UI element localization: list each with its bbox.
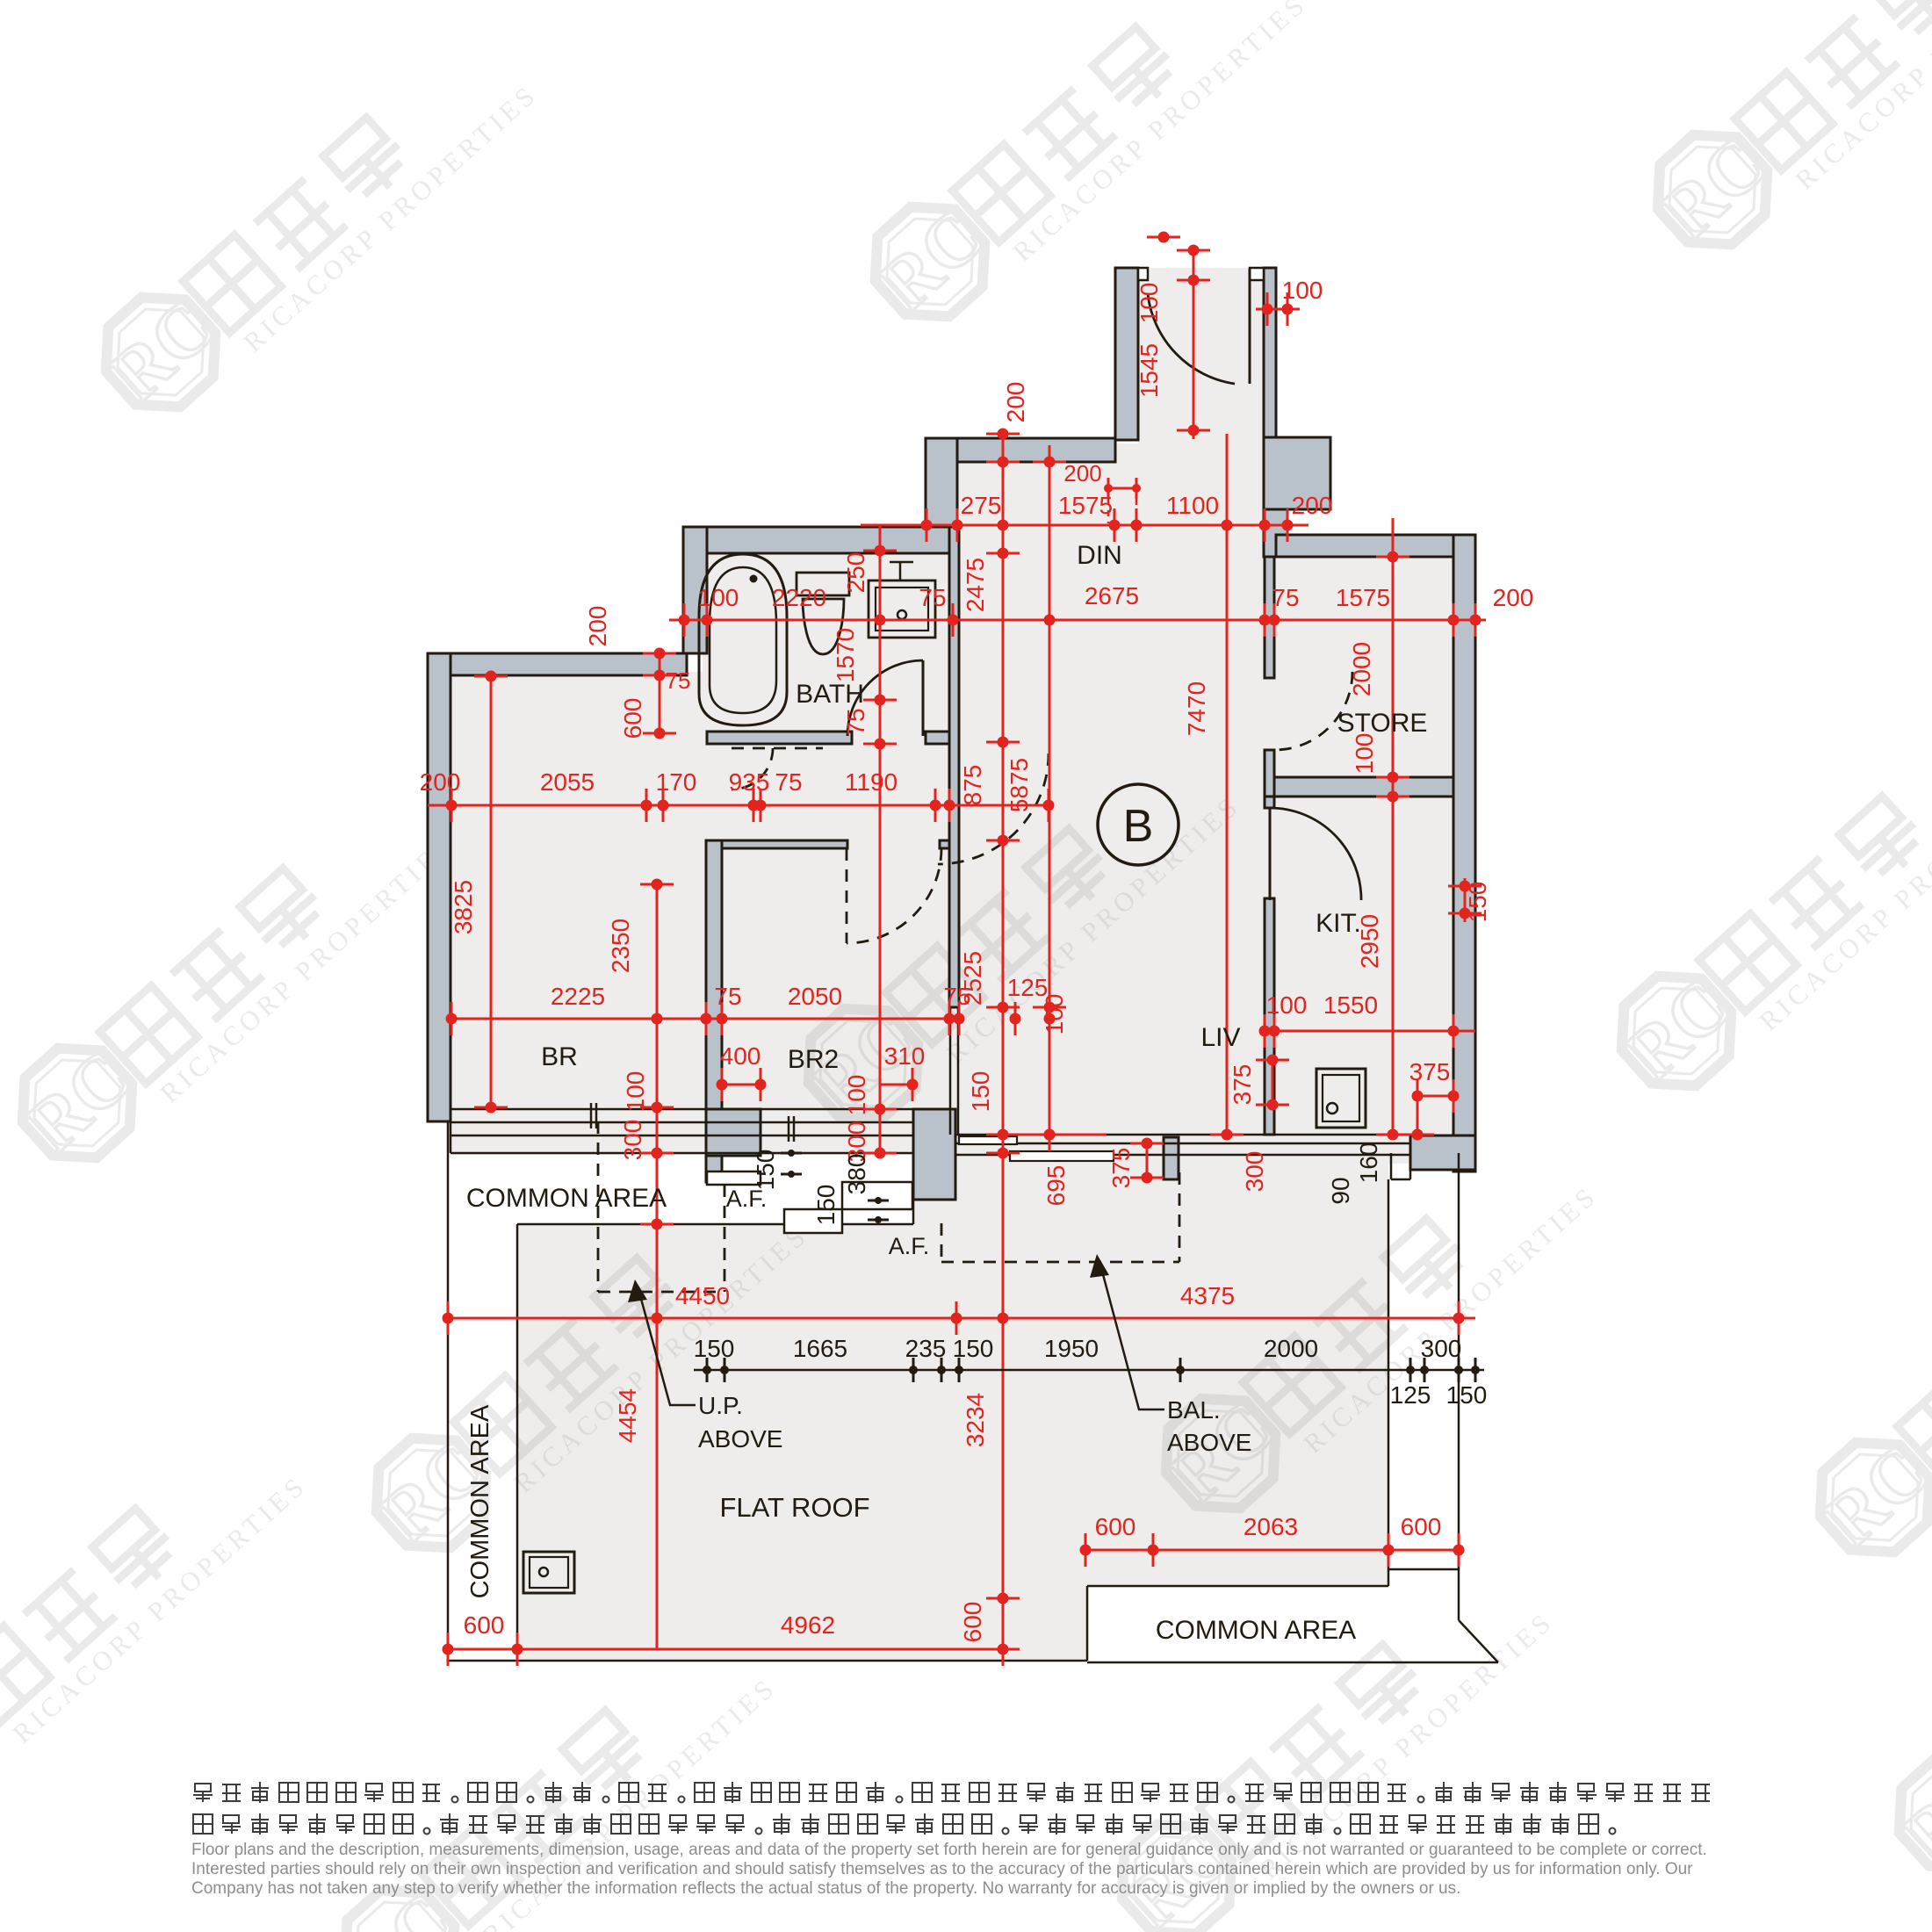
svg-text:4375: 4375 [1180,1282,1235,1309]
svg-text:1190: 1190 [845,768,898,796]
svg-text:1570: 1570 [832,628,859,682]
svg-text:100: 100 [1266,991,1308,1019]
svg-text:400: 400 [720,1042,761,1070]
svg-text:2063: 2063 [1244,1513,1298,1540]
svg-text:310: 310 [884,1042,926,1070]
svg-text:U.P.: U.P. [698,1392,743,1419]
svg-text:160: 160 [1355,1143,1382,1184]
svg-text:BR2: BR2 [788,1045,839,1074]
svg-text:2000: 2000 [1264,1335,1318,1362]
svg-text:100: 100 [698,584,739,611]
svg-text:600: 600 [1401,1513,1442,1540]
svg-text:ABOVE: ABOVE [698,1425,782,1453]
svg-text:Company has not taken any step: Company has not taken any step to verify… [191,1879,1460,1898]
svg-text:380: 380 [843,1154,870,1195]
svg-text:BAL.: BAL. [1167,1396,1221,1424]
svg-text:7470: 7470 [1183,681,1210,736]
svg-text:B: B [1123,801,1154,852]
svg-text:DIN: DIN [1077,541,1122,570]
svg-text:375: 375 [1409,1058,1451,1085]
svg-text:75: 75 [1272,584,1299,611]
svg-text:STORE: STORE [1337,709,1428,738]
svg-text:FLAT ROOF: FLAT ROOF [719,1492,869,1523]
svg-text:75: 75 [666,667,691,694]
svg-text:600: 600 [464,1611,505,1639]
svg-text:100: 100 [1282,277,1323,304]
svg-text:2220: 2220 [772,584,826,611]
svg-text:4450: 4450 [675,1282,730,1309]
svg-text:COMMON AREA: COMMON AREA [466,1404,494,1598]
svg-text:375: 375 [1229,1064,1256,1106]
svg-text:90: 90 [1327,1177,1354,1204]
svg-text:LIV: LIV [1200,1023,1240,1052]
svg-text:200: 200 [1292,492,1333,519]
svg-text:1545: 1545 [1135,343,1163,398]
svg-text:100: 100 [1351,733,1378,775]
svg-text:2475: 2475 [962,558,989,612]
svg-text:150: 150 [967,1071,994,1113]
svg-text:235: 235 [905,1335,947,1362]
svg-text:1665: 1665 [793,1335,847,1362]
svg-text:150: 150 [752,1150,779,1191]
svg-text:100: 100 [622,1071,649,1113]
svg-text:1950: 1950 [1044,1335,1099,1362]
svg-text:4962: 4962 [781,1611,835,1639]
svg-text:5875: 5875 [1006,758,1033,812]
svg-text:600: 600 [619,698,646,739]
svg-text:150: 150 [812,1185,840,1226]
svg-text:300: 300 [1241,1151,1268,1193]
svg-text:200: 200 [584,606,611,647]
svg-text:375: 375 [1107,1148,1135,1189]
svg-text:300: 300 [619,1120,646,1161]
svg-text:150: 150 [1464,882,1491,923]
svg-text:2225: 2225 [551,983,605,1010]
svg-text:75: 75 [842,708,869,735]
svg-text:1550: 1550 [1323,991,1378,1019]
svg-text:ABOVE: ABOVE [1167,1429,1251,1456]
svg-text:2055: 2055 [540,768,595,796]
svg-text:Floor plans and the descriptio: Floor plans and the description, measure… [191,1841,1707,1859]
svg-text:695: 695 [1042,1165,1070,1207]
svg-text:200: 200 [1063,460,1101,487]
svg-text:2675: 2675 [1085,582,1139,609]
svg-text:2525: 2525 [959,951,986,1006]
svg-text:75: 75 [775,768,802,796]
svg-text:2350: 2350 [607,919,634,973]
svg-text:600: 600 [1095,1513,1136,1540]
svg-text:170: 170 [656,768,697,796]
svg-text:KIT.: KIT. [1316,909,1361,938]
svg-text:200: 200 [1002,382,1029,423]
svg-text:1100: 1100 [1166,492,1219,519]
svg-text:150: 150 [694,1335,735,1362]
svg-text:75: 75 [714,983,741,1010]
svg-text:150: 150 [953,1335,994,1362]
svg-text:200: 200 [1493,584,1534,611]
svg-text:A.F.: A.F. [726,1186,768,1212]
svg-text:2000: 2000 [1348,642,1375,696]
svg-text:A.F.: A.F. [889,1233,930,1259]
svg-text:COMMON AREA: COMMON AREA [466,1184,667,1213]
svg-text:1575: 1575 [1058,492,1113,519]
svg-text:COMMON AREA: COMMON AREA [1156,1616,1356,1645]
svg-text:150: 150 [1446,1381,1488,1409]
svg-text:300: 300 [1421,1335,1462,1362]
svg-text:100: 100 [843,1075,870,1116]
svg-text:1575: 1575 [1336,584,1390,611]
svg-text:250: 250 [842,552,869,594]
svg-text:125: 125 [1390,1381,1431,1409]
svg-text:4454: 4454 [614,1388,641,1443]
svg-text:3234: 3234 [962,1393,989,1447]
svg-text:BR: BR [541,1042,578,1071]
svg-text:875: 875 [959,765,986,806]
svg-text:3825: 3825 [450,880,477,934]
svg-text:200: 200 [420,768,461,796]
svg-text:100: 100 [1041,994,1068,1035]
svg-text:935: 935 [729,768,770,796]
svg-text:Interested parties should rely: Interested parties should rely on their … [191,1860,1693,1878]
svg-text:100: 100 [1135,283,1163,324]
svg-text:BATH: BATH [796,680,864,709]
svg-text:600: 600 [959,1602,986,1643]
svg-text:2050: 2050 [788,983,842,1010]
svg-text:75: 75 [919,584,946,611]
svg-text:275: 275 [961,492,1002,519]
